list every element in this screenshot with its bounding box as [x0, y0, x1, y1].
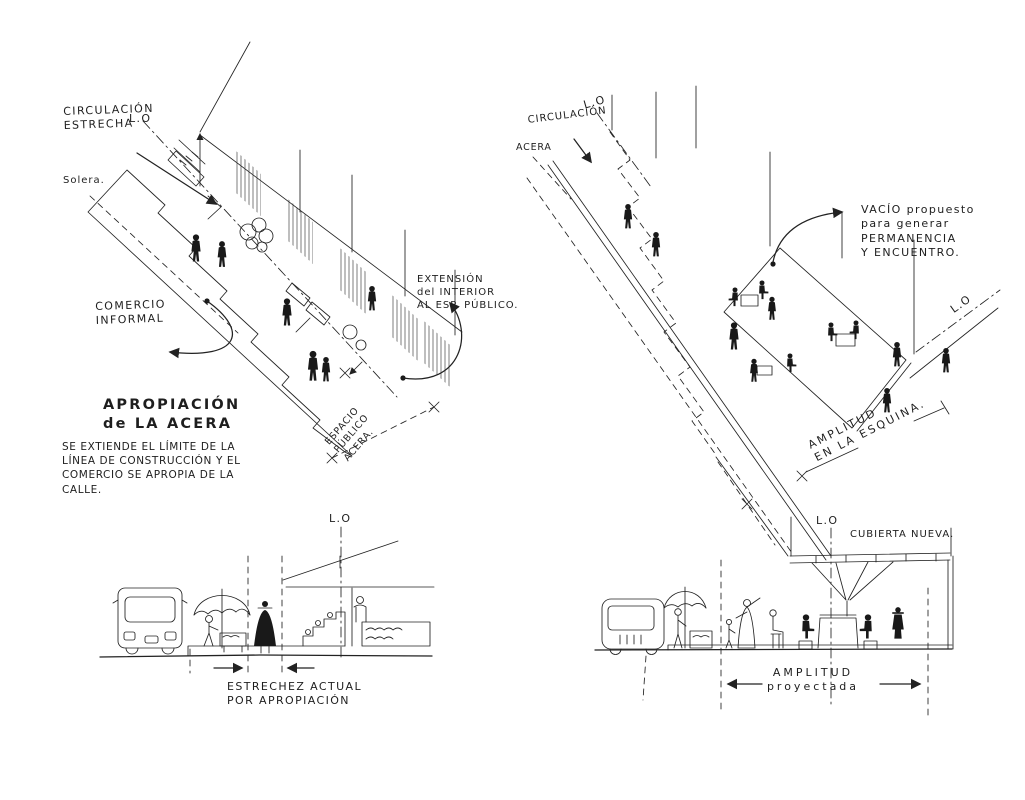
van: [602, 599, 664, 655]
linea-oficial-line: [143, 121, 397, 397]
label-comercio-informal: COMERCIO INFORMAL: [95, 298, 167, 329]
sketch-bottom-left-section: [100, 527, 434, 673]
ground-line: [100, 655, 432, 657]
vacio-leader: [773, 212, 842, 262]
building-line-stepped: [610, 132, 716, 455]
label-amplitud-proyectada: AMPLITUD proyectada: [758, 666, 868, 695]
circulacion-arrow: [137, 153, 216, 204]
standing-figures: [726, 598, 783, 648]
label-acera: ACERA: [516, 142, 552, 154]
label-extension-interior: EXTENSIÓN del INTERIOR AL ESP. PÚBLICO.: [417, 273, 518, 312]
plaza-people: [729, 280, 902, 412]
label-solera: Solera.: [63, 174, 105, 187]
circulacion-arrow: [574, 139, 591, 162]
x-mark: [340, 368, 350, 378]
standing-figure: [254, 601, 276, 653]
table-scene: [799, 607, 904, 649]
market-stand: [168, 140, 205, 186]
comercio-leader: [170, 301, 232, 353]
x-marks: [742, 471, 807, 509]
plaza-tables: [741, 295, 855, 375]
awning-lines: [283, 541, 434, 587]
right-curb: [910, 308, 998, 378]
building-wall: [948, 556, 953, 649]
label-lo-top-left: L.O: [129, 112, 151, 126]
steps: [303, 612, 345, 646]
linea-oficial-top: [597, 113, 651, 187]
bus: [113, 588, 187, 654]
label-lo-bottom-left: L.O: [329, 512, 351, 526]
corner-plaza: [724, 248, 906, 428]
sketch-page: CIRCULACIÓN ESTRECHA L.O Solera. COMERCI…: [0, 0, 1025, 800]
street-corner-edge: [716, 457, 788, 556]
market-stall: [352, 588, 430, 646]
dimension-extension: [718, 462, 775, 545]
label-vacio-propuesto: VACÍO propuesto para generar PERMANENCIA…: [861, 203, 975, 260]
label-apropiacion-texto: SE EXTIENDE EL LÍMITE DE LA LÍNEA DE CON…: [62, 440, 241, 497]
sketch-top-right-axonometric: [527, 86, 1000, 560]
umbrella-vendor: [194, 589, 250, 652]
curb-projection: [643, 656, 646, 700]
label-estrechez-actual: ESTRECHEZ ACTUAL POR APROPIACIÓN: [227, 680, 362, 709]
label-cubierta-nueva: CUBIERTA NUEVA.: [850, 528, 954, 541]
produce-pile: [240, 218, 273, 252]
label-apropiacion-titulo: APROPIACIÓN de LA ACERA: [103, 396, 240, 434]
umbrella-vendor: [664, 587, 712, 648]
label-lo-bottom-right: L.O: [816, 514, 838, 528]
